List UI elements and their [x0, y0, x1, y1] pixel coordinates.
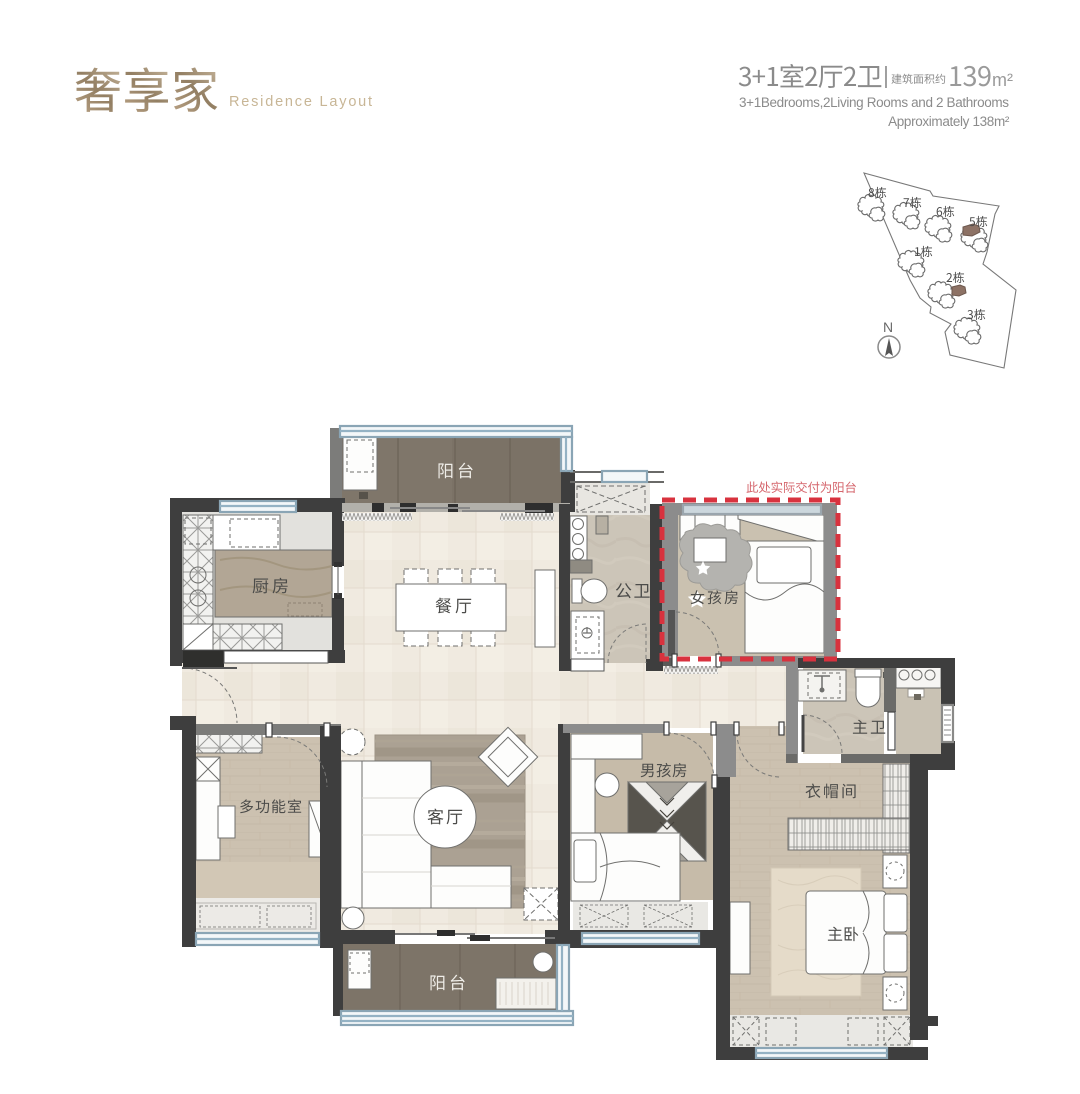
svg-text:Approximately 138m²: Approximately 138m²: [888, 114, 1010, 129]
svg-text:|: |: [883, 62, 889, 88]
svg-text:m²: m²: [992, 70, 1013, 90]
svg-text:N: N: [883, 319, 893, 335]
svg-text:3+1Bedrooms,2Living Rooms and: 3+1Bedrooms,2Living Rooms and 2 Bathroom…: [739, 95, 1009, 110]
svg-text:Residence Layout: Residence Layout: [229, 94, 374, 110]
